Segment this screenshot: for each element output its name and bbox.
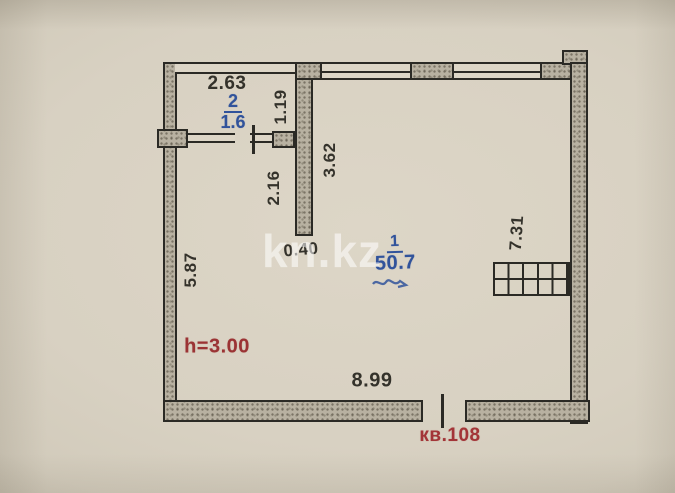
left-wall xyxy=(163,62,177,422)
room2-wall-junction xyxy=(157,129,188,148)
watermark: kn.kz xyxy=(262,224,382,278)
dim-below-room2: 2.16 xyxy=(264,170,284,205)
ceiling-height-label: h=3.00 xyxy=(184,336,250,359)
dim-inner-wall: 3.62 xyxy=(320,142,340,177)
central-inner-wall xyxy=(295,78,313,236)
room2-label: 2 1.6 xyxy=(211,92,255,131)
right-wall xyxy=(570,62,588,424)
window-right xyxy=(454,62,540,80)
dim-left-side: 5.87 xyxy=(181,252,201,287)
room2-partition-solid xyxy=(272,131,295,148)
bottom-wall-right xyxy=(465,400,590,422)
dim-bottom-width: 8.99 xyxy=(352,370,393,393)
floor-plan-photo: 2.63 1.19 3.62 2.16 0.40 5.87 7.31 8.99 … xyxy=(0,0,675,493)
entrance-door-tick xyxy=(441,394,444,428)
bottom-wall-left xyxy=(163,400,423,422)
radiator-grid xyxy=(493,262,570,296)
room2-number: 2 xyxy=(224,92,242,113)
window-left xyxy=(322,62,410,80)
top-wall-pier xyxy=(410,62,454,80)
dim-room2-height: 1.19 xyxy=(271,89,291,124)
dim-right-side: 7.31 xyxy=(506,215,528,251)
room1-number: 1 xyxy=(386,234,404,254)
room2-area: 1.6 xyxy=(211,113,255,131)
apartment-number-label: кв.108 xyxy=(419,425,480,447)
room2-partition-left xyxy=(188,133,235,143)
